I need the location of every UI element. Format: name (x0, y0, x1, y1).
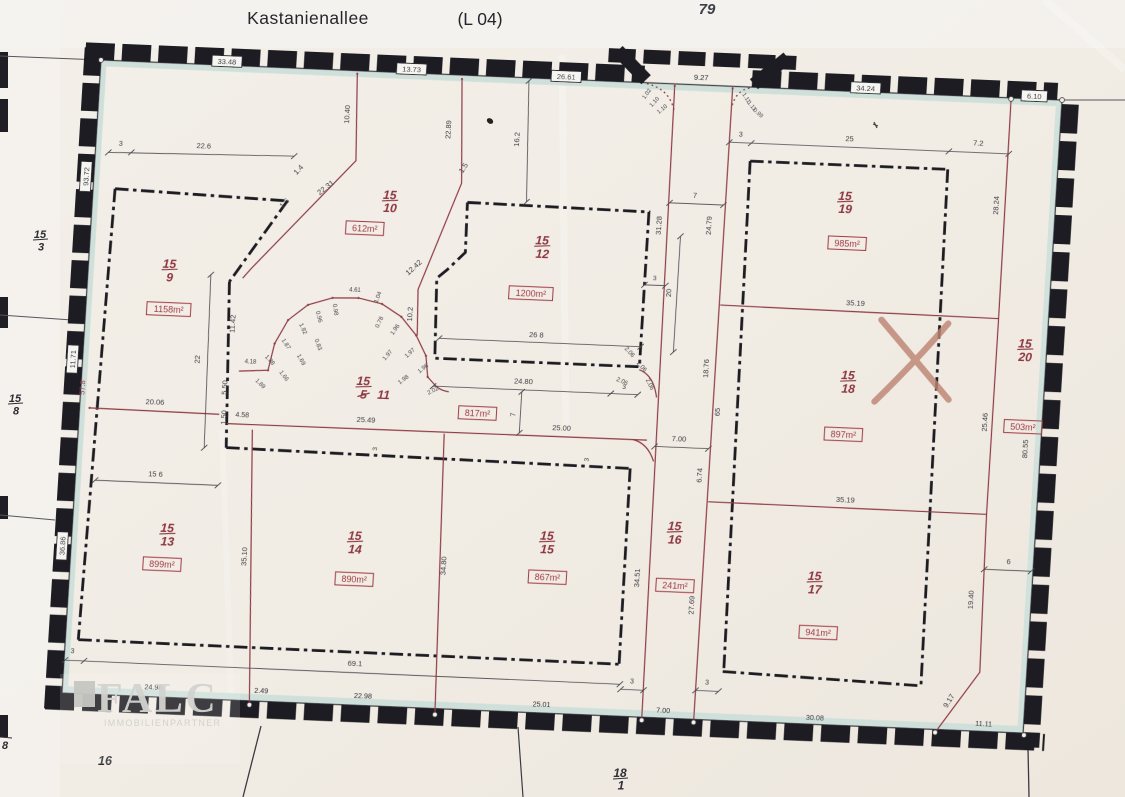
svg-text:3: 3 (372, 447, 379, 451)
svg-text:3: 3 (705, 680, 709, 687)
svg-text:22.6: 22.6 (196, 141, 211, 151)
svg-text:4.58: 4.58 (235, 412, 249, 420)
svg-text:20: 20 (664, 289, 673, 298)
svg-text:30.08: 30.08 (806, 713, 825, 723)
svg-text:6: 6 (1006, 557, 1011, 566)
svg-text:10: 10 (383, 201, 398, 216)
svg-text:31.28: 31.28 (654, 216, 664, 235)
svg-text:899m²: 899m² (149, 559, 175, 570)
svg-text:7.2: 7.2 (973, 138, 984, 147)
svg-text:15 6: 15 6 (148, 469, 163, 479)
svg-text:18: 18 (841, 381, 856, 396)
svg-text:18.76: 18.76 (701, 359, 711, 378)
svg-text:3: 3 (739, 132, 743, 139)
svg-text:26 8: 26 8 (529, 330, 544, 340)
svg-text:867m²: 867m² (534, 572, 560, 583)
svg-text:7: 7 (510, 412, 517, 416)
svg-text:8: 8 (2, 740, 9, 752)
svg-text:3: 3 (70, 648, 74, 655)
svg-text:FALC: FALC (97, 676, 218, 722)
svg-text:7: 7 (693, 191, 698, 200)
svg-text:16: 16 (668, 532, 683, 547)
svg-text:1200m²: 1200m² (515, 288, 546, 299)
svg-text:36.86: 36.86 (57, 536, 67, 555)
svg-text:8: 8 (13, 406, 20, 418)
svg-text:IMMOBILIENPARTNER: IMMOBILIENPARTNER (104, 718, 221, 728)
svg-text:3: 3 (584, 457, 591, 461)
svg-text:3: 3 (630, 679, 634, 686)
svg-text:25: 25 (845, 134, 854, 143)
svg-text:13: 13 (160, 534, 175, 549)
svg-text:7.00: 7.00 (671, 434, 686, 444)
svg-text:941m²: 941m² (805, 627, 831, 638)
svg-text:20: 20 (1017, 350, 1033, 365)
svg-text:34.24: 34.24 (856, 83, 875, 93)
svg-text:Kastanienallee: Kastanienallee (247, 8, 369, 28)
svg-text:24.79: 24.79 (704, 216, 714, 235)
svg-text:19.40: 19.40 (966, 590, 976, 609)
svg-text:35.10: 35.10 (239, 547, 249, 566)
svg-text:16.2: 16.2 (512, 132, 522, 147)
svg-text:27.69: 27.69 (686, 596, 696, 615)
svg-text:9: 9 (166, 270, 174, 284)
svg-text:22.98: 22.98 (354, 691, 373, 701)
svg-text:24.80: 24.80 (514, 377, 533, 387)
svg-text:19: 19 (838, 202, 853, 217)
svg-text:(L 04): (L 04) (457, 9, 502, 29)
svg-text:28.24: 28.24 (991, 196, 1001, 215)
svg-text:817m²: 817m² (464, 408, 490, 419)
svg-text:57.8: 57.8 (77, 380, 87, 395)
svg-text:5.50: 5.50 (219, 380, 229, 395)
svg-text:25.46: 25.46 (980, 413, 990, 432)
svg-text:11: 11 (377, 388, 391, 403)
svg-text:11.11: 11.11 (975, 719, 992, 729)
svg-text:17: 17 (808, 582, 824, 597)
svg-text:34.51: 34.51 (632, 568, 642, 587)
svg-text:25.01: 25.01 (532, 700, 551, 710)
svg-text:10.40: 10.40 (342, 105, 352, 124)
svg-text:80.55: 80.55 (1020, 439, 1030, 458)
svg-text:14: 14 (348, 542, 363, 557)
svg-text:33.48: 33.48 (217, 57, 236, 67)
svg-text:2.49: 2.49 (254, 686, 269, 696)
svg-text:22: 22 (192, 355, 201, 364)
svg-text:35.19: 35.19 (846, 298, 865, 308)
svg-text:241m²: 241m² (662, 580, 688, 591)
svg-text:13.73: 13.73 (402, 64, 421, 74)
svg-text:897m²: 897m² (830, 429, 856, 440)
svg-text:985m²: 985m² (834, 238, 860, 249)
svg-text:65: 65 (712, 408, 721, 417)
svg-text:12: 12 (535, 247, 550, 262)
svg-text:890m²: 890m² (341, 574, 367, 585)
svg-text:26.61: 26.61 (557, 72, 576, 82)
svg-text:1: 1 (618, 779, 625, 793)
svg-text:7.00: 7.00 (656, 706, 671, 716)
svg-text:4.61: 4.61 (349, 288, 362, 295)
svg-text:35.19: 35.19 (836, 495, 855, 505)
svg-text:1.50: 1.50 (219, 410, 229, 425)
svg-text:25.00: 25.00 (552, 423, 571, 433)
svg-text:3: 3 (38, 242, 44, 254)
svg-text:22.89: 22.89 (443, 120, 453, 139)
svg-text:503m²: 503m² (1010, 422, 1036, 433)
svg-text:69.1: 69.1 (347, 659, 362, 669)
svg-text:11.71: 11.71 (68, 350, 78, 369)
svg-text:6.10: 6.10 (1027, 92, 1042, 102)
svg-text:79: 79 (699, 1, 716, 18)
svg-text:93.72: 93.72 (81, 167, 91, 186)
svg-text:4.18: 4.18 (244, 359, 257, 366)
svg-text:6.74: 6.74 (694, 468, 704, 483)
svg-text:34.80: 34.80 (438, 556, 448, 575)
svg-text:612m²: 612m² (352, 223, 378, 234)
svg-text:10.2: 10.2 (405, 307, 415, 322)
svg-text:20.06: 20.06 (145, 397, 164, 407)
svg-text:15: 15 (540, 542, 555, 557)
svg-text:11.42: 11.42 (227, 314, 237, 333)
svg-text:1158m²: 1158m² (154, 304, 184, 315)
svg-text:25.49: 25.49 (356, 415, 375, 425)
svg-text:3: 3 (119, 141, 123, 148)
svg-text:9.27: 9.27 (694, 73, 709, 83)
